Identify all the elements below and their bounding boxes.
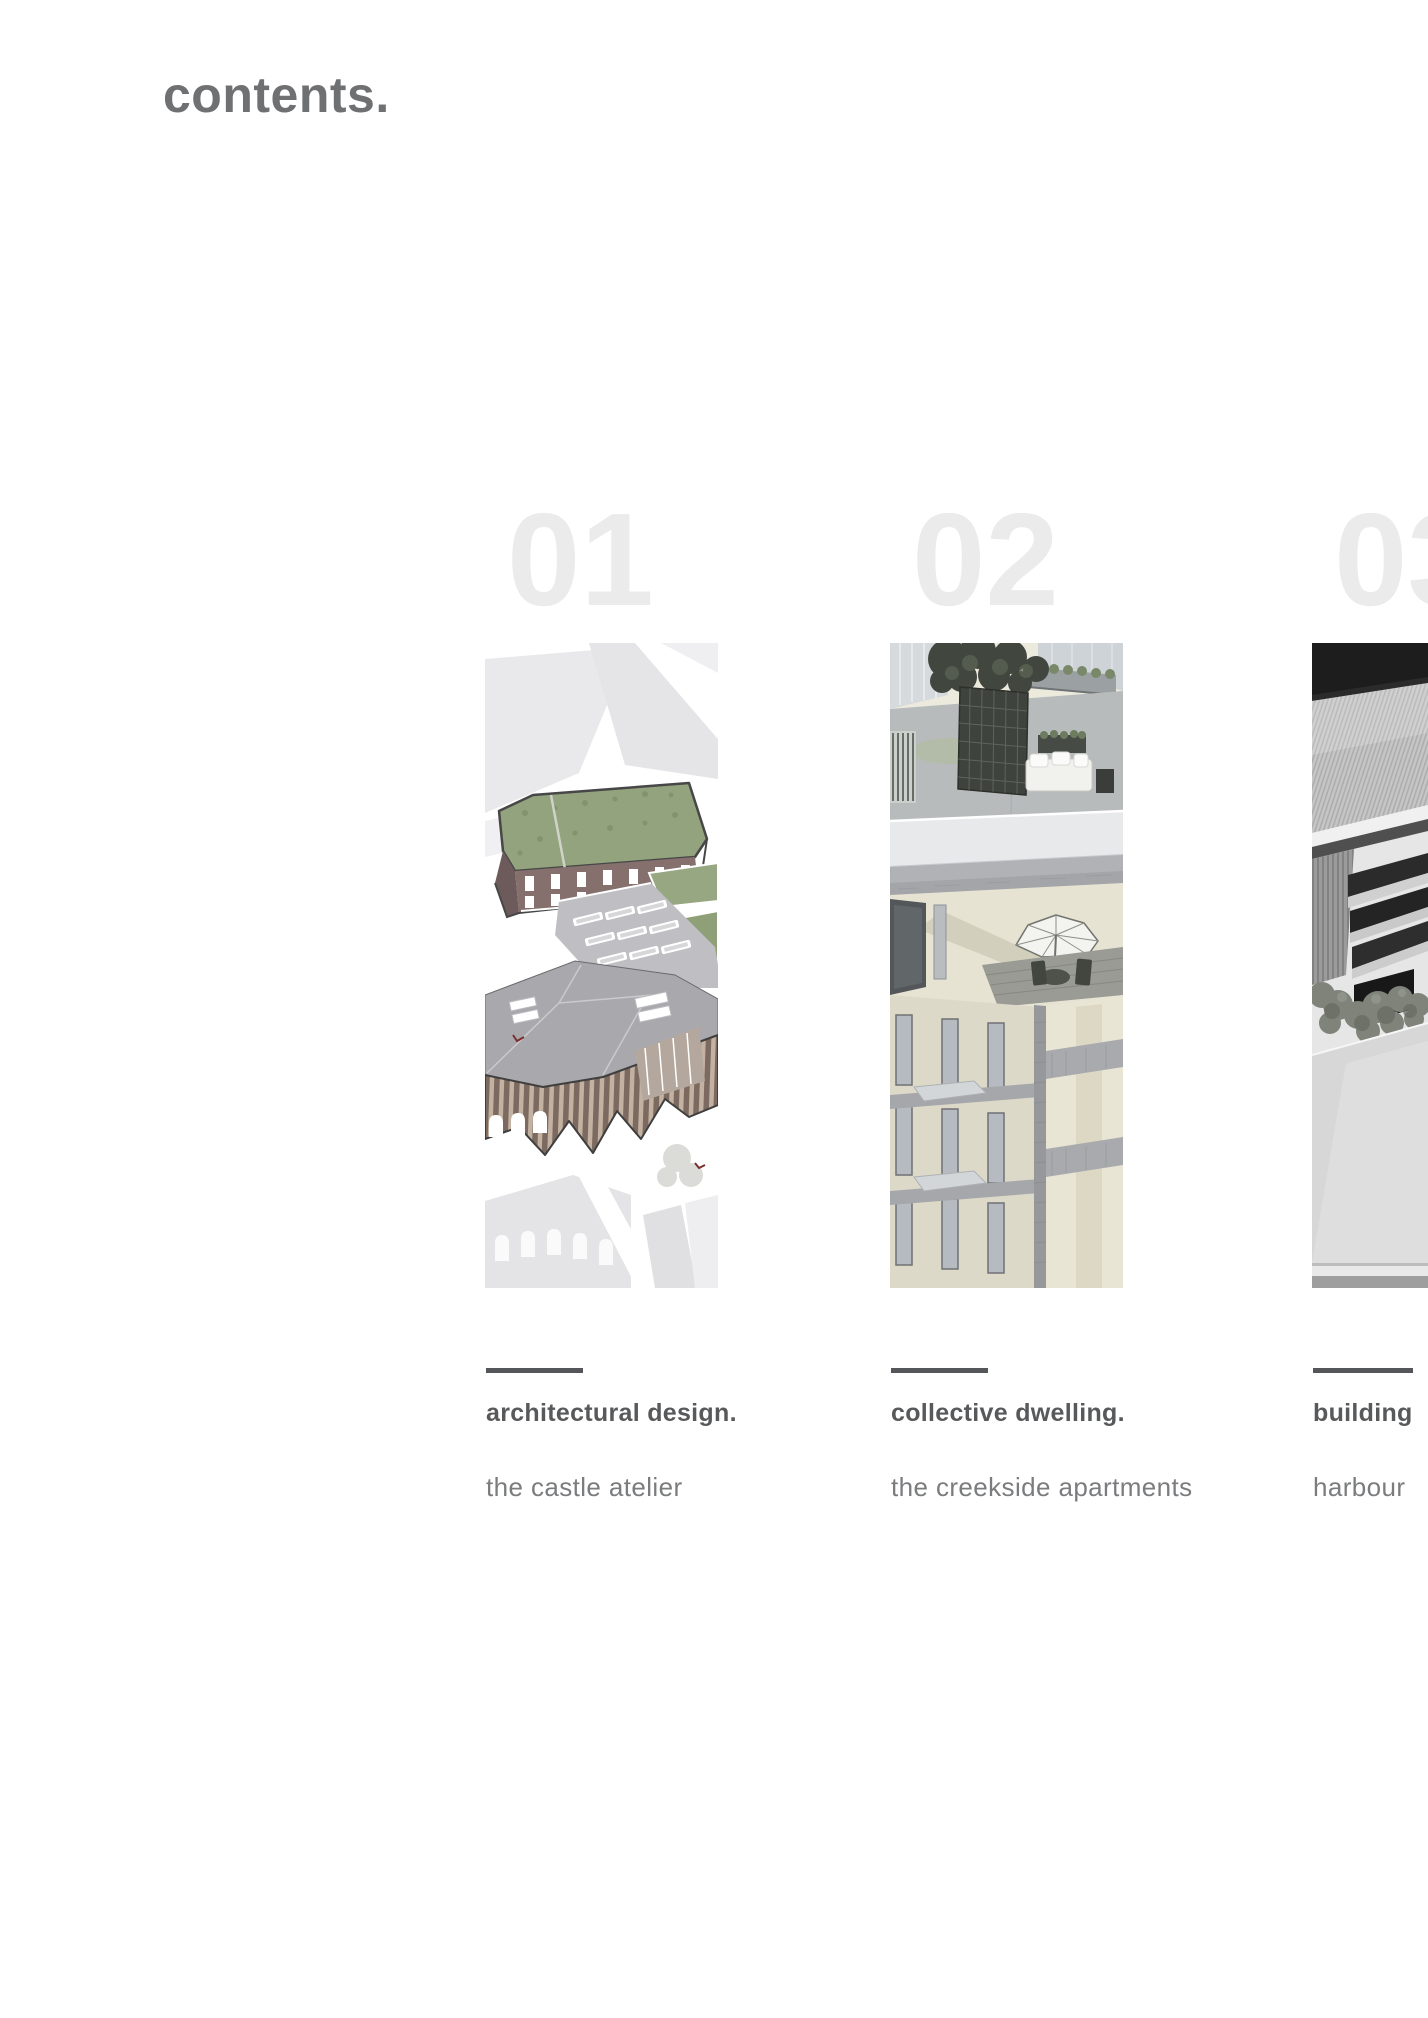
contents-page: contents. 01 [0, 0, 1428, 2018]
section-title: architectural design. [486, 1399, 737, 1428]
divider-rule [891, 1368, 988, 1373]
section-title: collective dwelling. [891, 1399, 1125, 1428]
toc-entry-architectural-design: 01 [485, 0, 718, 2018]
divider-rule [486, 1368, 583, 1373]
section-number-03: 03 [1334, 494, 1428, 626]
project-thumbnail-castle-atelier [485, 643, 718, 1288]
divider-rule [1313, 1368, 1413, 1373]
section-number-02: 02 [912, 494, 1059, 626]
creekside-apartments-render-image [890, 643, 1123, 1288]
harbour-model-photo-image [1312, 643, 1428, 1288]
section-number-01: 01 [507, 494, 654, 626]
toc-entry-building-technology: 03 [1312, 0, 1428, 2018]
page-title: contents. [163, 66, 390, 124]
section-subtitle: harbour [1313, 1472, 1405, 1503]
section-subtitle: the castle atelier [486, 1472, 683, 1503]
section-subtitle: the creekside apartments [891, 1472, 1193, 1503]
project-thumbnail-harbour-model [1312, 643, 1428, 1288]
toc-entry-collective-dwelling: 02 [890, 0, 1123, 2018]
section-title: building [1313, 1399, 1413, 1428]
project-thumbnail-creekside-apartments [890, 643, 1123, 1288]
castle-atelier-render-image [485, 643, 718, 1288]
